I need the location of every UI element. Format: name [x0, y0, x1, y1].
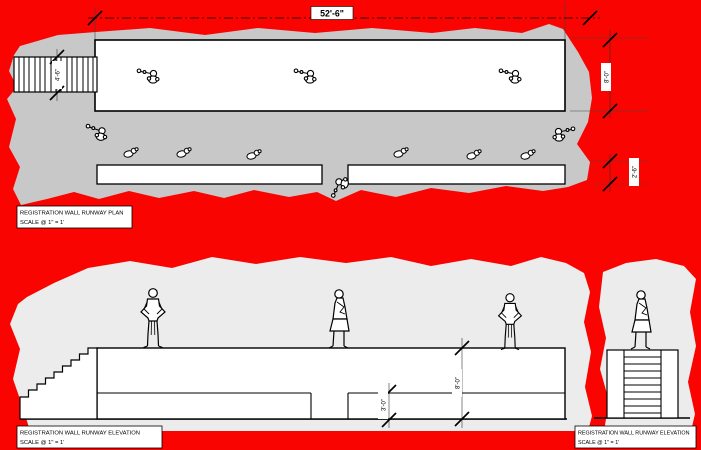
elevation-title-text: REGISTRATION WALL RUNWAY ELEVATION — [20, 431, 140, 437]
runway-wall-plan — [95, 40, 565, 111]
stair-width-dim-text: 4'-6" — [55, 69, 61, 81]
bench-plan-right — [348, 165, 565, 184]
plan-title-text: REGISTRATION WALL RUNWAY PLAN — [20, 211, 123, 217]
plan-title-block: REGISTRATION WALL RUNWAY PLAN SCALE @ 1"… — [17, 206, 132, 228]
elevation-end-title-text: REGISTRATION WALL RUNWAY ELEVATION — [578, 431, 690, 437]
elevation-title-block: REGISTRATION WALL RUNWAY ELEVATION SCALE… — [17, 426, 162, 448]
runway-wall-elevation — [97, 348, 565, 419]
stairs-end-elevation — [607, 350, 678, 418]
plan-length-dim-text: 52'-6" — [320, 8, 344, 18]
plan-depth-dim-text: 8'-0" — [604, 71, 610, 83]
plan-scale-text: SCALE @ 1" = 1' — [20, 220, 64, 226]
bench-height-dim-text: 3'-0" — [381, 399, 387, 411]
plan-bench-depth-dim-text: 2'-6" — [632, 166, 638, 178]
elevation-height-dim-text: 8'-0" — [455, 377, 461, 389]
elevation-end-scale-text: SCALE @ 1" = 1' — [578, 440, 619, 446]
bench-plan-left — [97, 165, 322, 184]
drawing-page: 52'-6" 4'-6" 8'- — [0, 0, 701, 450]
elevation-end-title-block: REGISTRATION WALL RUNWAY ELEVATION SCALE… — [575, 426, 696, 448]
cad-drawing: 52'-6" 4'-6" 8'- — [0, 0, 701, 450]
elevation-scale-text: SCALE @ 1" = 1' — [20, 440, 64, 446]
